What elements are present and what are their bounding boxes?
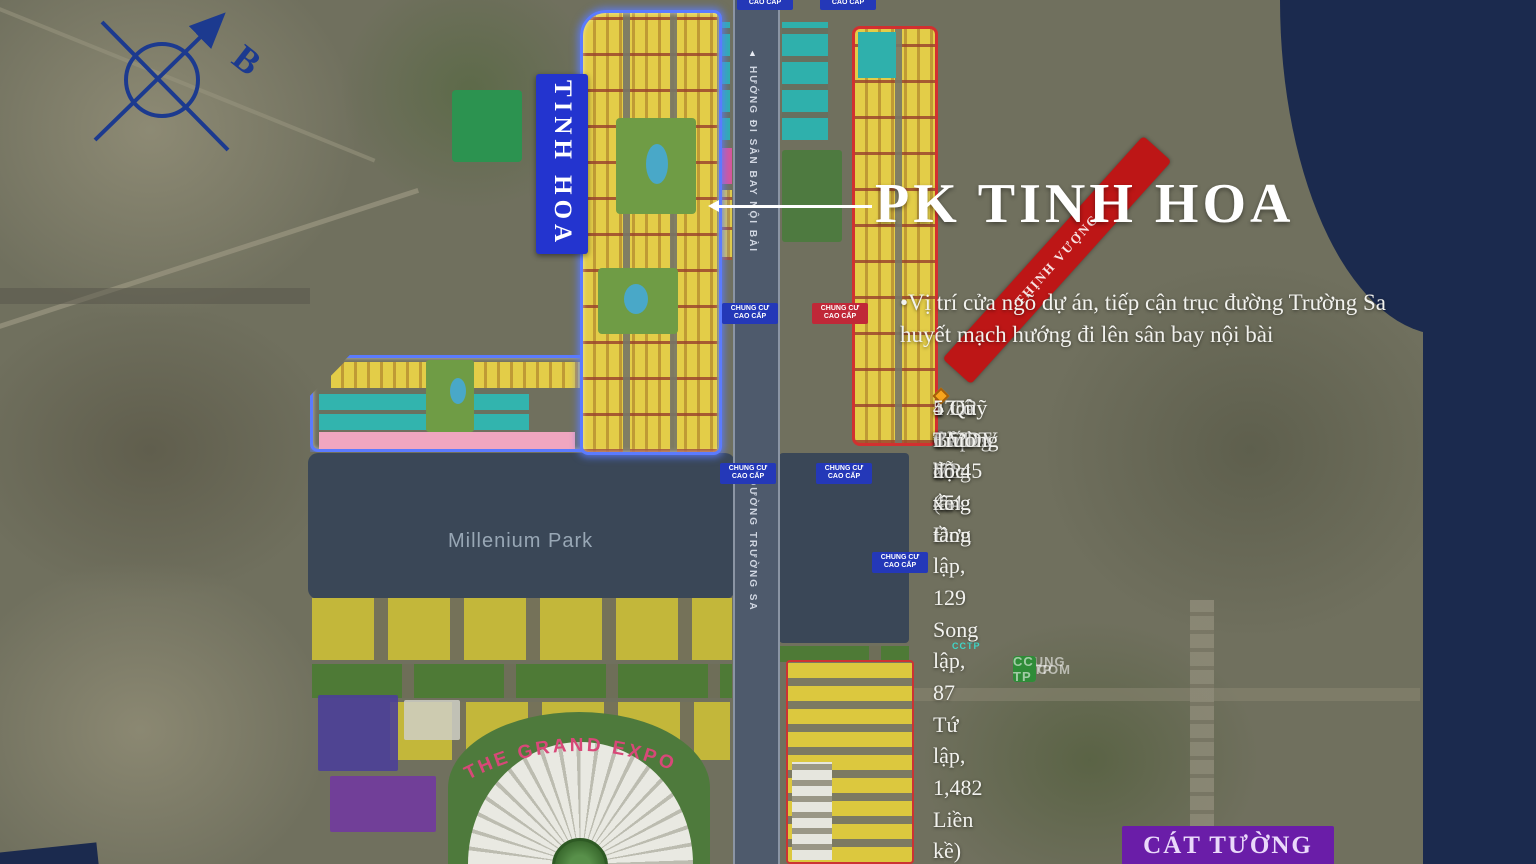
housing-cluster-white <box>792 762 832 860</box>
tinh-hoa-banner-label: TINH HOA <box>548 80 576 247</box>
svg-text:THE GRAND EXPO: THE GRAND EXPO <box>461 735 679 784</box>
apartment-rows <box>319 390 529 430</box>
airport-road-label: HƯỚNG ĐI SÂN BAY NỘI BÀI <box>747 66 758 256</box>
compass-icon: B <box>70 0 280 170</box>
map-building-block <box>330 776 436 832</box>
tinh-hoa-wing-interior <box>311 356 593 451</box>
minor-road-vertical <box>1190 600 1214 864</box>
millenium-park-lake <box>308 453 735 599</box>
chung-cu-badge: CHUNG CƯ CAO CẤP <box>820 0 876 10</box>
location-description: •Vị trí cửa ngõ dự án, tiếp cận trục đườ… <box>900 287 1390 350</box>
park-label: Millenium Park <box>448 530 593 553</box>
masterplan-slide: Millenium Park THE GRAND EXPO ▲ HƯỚNG ĐI… <box>0 0 1536 864</box>
amenity-park <box>598 268 678 334</box>
road-direction-arrow-icon: ▲ <box>748 48 757 58</box>
legend-label: CC TP <box>1013 654 1034 684</box>
thinh-vuong-zone <box>852 26 938 446</box>
compass-north-label: B <box>225 37 269 83</box>
chung-cu-badge: CHUNG CƯ CAO CẤP <box>720 463 776 484</box>
apartment-block <box>858 32 896 78</box>
slide-corner-shape <box>0 842 99 864</box>
chung-cu-badge: CHUNG CƯ CAO CẤP <box>812 303 868 324</box>
page-title: PK TINH HOA <box>875 172 1345 236</box>
expo-curved-label: THE GRAND EXPO <box>452 716 708 788</box>
truong-sa-road-label: ĐƯỜNG TRƯỜNG SA <box>747 478 758 648</box>
field-blocks <box>312 598 732 660</box>
slide-corner-shape <box>1280 0 1445 335</box>
terrain-patch <box>0 300 340 600</box>
pool <box>646 144 668 184</box>
green-strip <box>312 664 732 698</box>
amenity-park <box>426 360 474 432</box>
pool <box>624 284 648 314</box>
railway-strip <box>0 288 310 304</box>
cat-tuong-label: CÁT TƯỜNG <box>1143 832 1313 860</box>
cat-tuong-banner: CÁT TƯỜNG <box>1122 826 1334 864</box>
green-block <box>782 150 842 242</box>
bullet-text: 5 Trường học <box>933 392 999 487</box>
tinh-hoa-banner: TINH HOA <box>536 74 588 254</box>
chung-cu-badge: CHUNG CƯ CAO CẤP <box>722 303 778 324</box>
pointer-line <box>718 205 872 208</box>
pool <box>450 378 466 404</box>
apartment-block <box>782 22 828 140</box>
chung-cu-badge: CHUNG CƯ CAO CẤP <box>816 463 872 484</box>
slide-side-band <box>1423 0 1536 864</box>
green-park <box>452 90 522 162</box>
terrain-patch <box>0 560 330 864</box>
map-building-block <box>318 695 398 771</box>
chung-cu-badge: CHUNG CƯ CAO CẤP <box>872 552 928 573</box>
tinh-hoa-zone-main <box>580 10 722 455</box>
minor-road <box>0 188 419 341</box>
chung-cu-badge: CHUNG CƯ CAO CẤP <box>737 0 793 10</box>
vincom-row <box>319 432 575 449</box>
amenity-park <box>616 118 696 214</box>
